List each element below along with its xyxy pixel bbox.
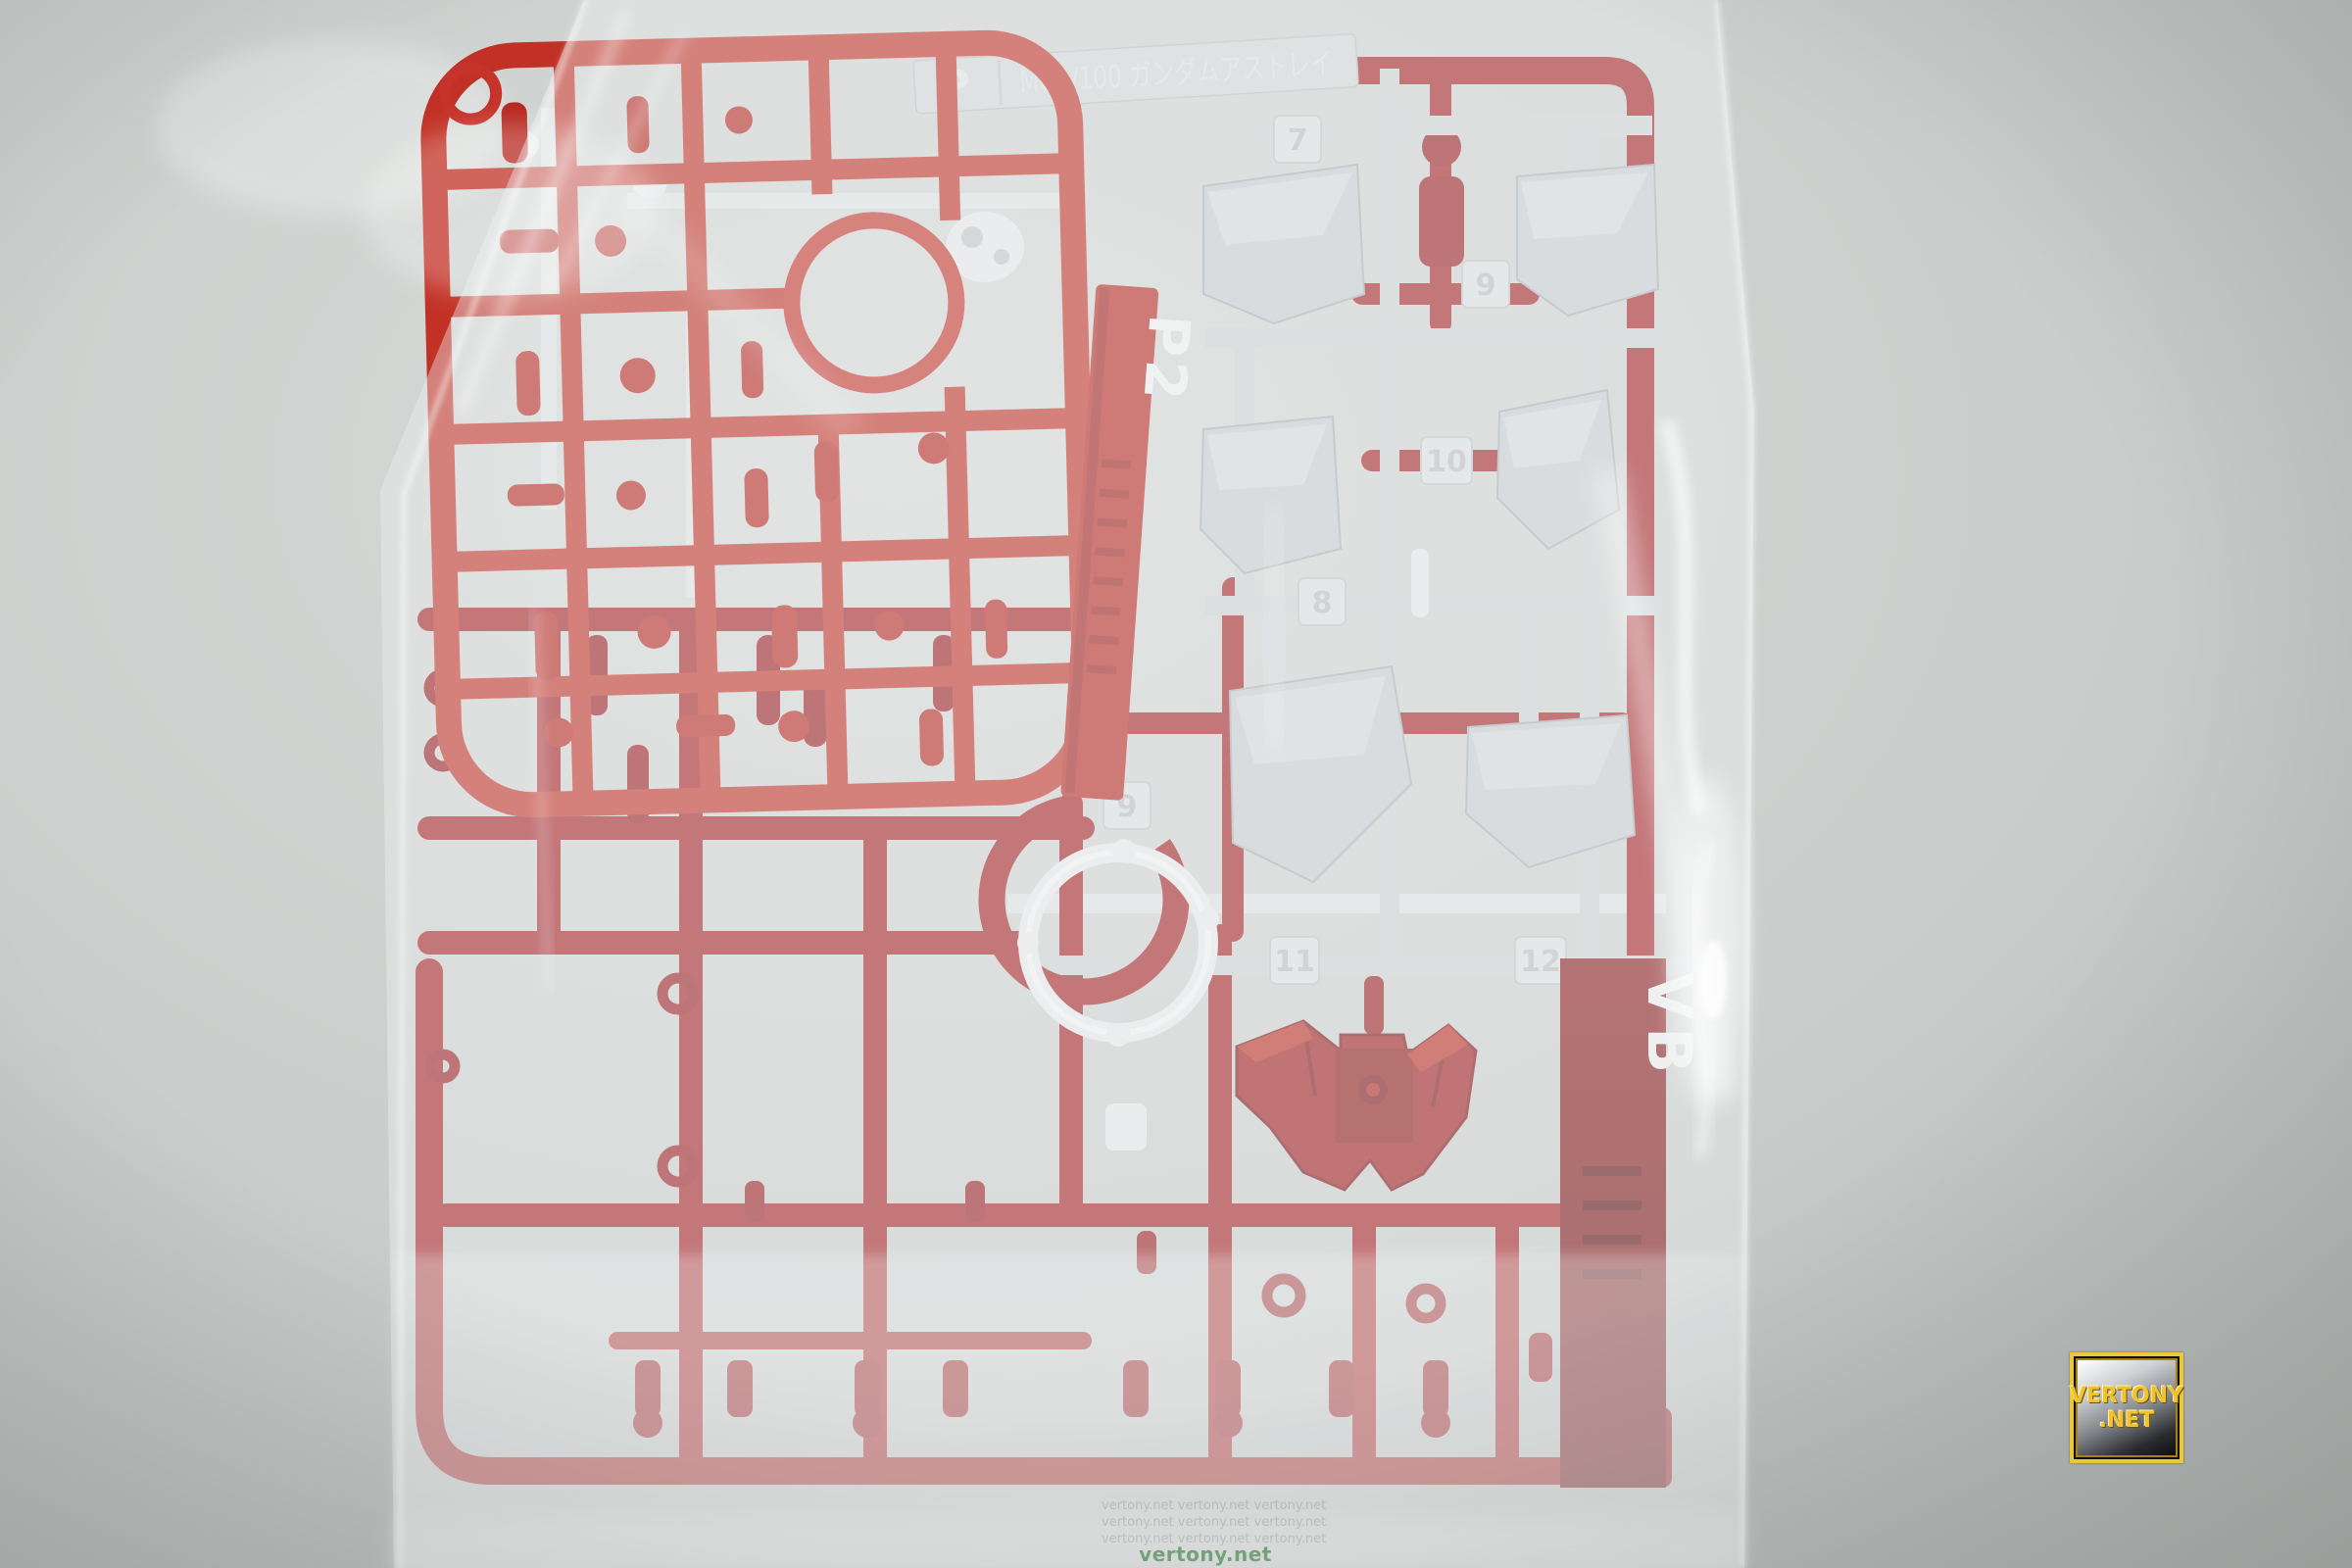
bag-faint-site-marks: vertony.net vertony.net vertony.net vert… <box>1102 1497 1435 1548</box>
watermark-line1: VERTONY <box>2070 1384 2183 1408</box>
site-watermark-text: vertony.net <box>1107 1543 1303 1566</box>
faint-row: vertony.net vertony.net vertony.net <box>1102 1497 1435 1514</box>
watermark-logo: VERTONY .NET <box>2070 1352 2183 1463</box>
watermark-line2: .NET <box>2099 1408 2155 1433</box>
watermark-logo-panel: VERTONY .NET <box>2076 1358 2178 1457</box>
vignette <box>0 0 2352 1568</box>
faint-row: vertony.net vertony.net vertony.net <box>1102 1514 1435 1531</box>
photo-model-kit-runner-in-bag: P MG1/100 ガンダムアストレイ 7 9 10 8 9 <box>0 0 2352 1568</box>
